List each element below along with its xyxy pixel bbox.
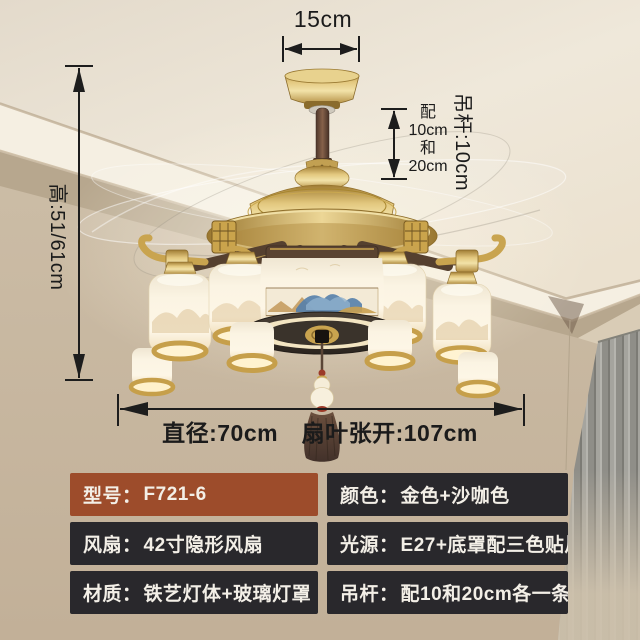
horizontal-arrow-icon [281,34,361,64]
lantern-shade [433,272,491,363]
spec-row-model: 型号： F721-6 [70,473,318,516]
spec-row-rod: 吊杆： 配10和20cm各一条 [327,571,568,614]
rod-length-label: 吊杆:10cm [450,76,479,208]
spec-row-color: 颜色： 金色+沙咖色 [327,473,568,516]
spec-value: F721-6 [144,484,207,506]
spec-label: 吊杆： [340,579,399,606]
spec-table: 型号： F721-6 颜色： 金色+沙咖色 风扇： 42寸隐形风扇 光源： E2… [70,473,568,614]
spec-row-material: 材质： 铁艺灯体+玻璃灯罩 [70,571,318,614]
downlight [367,320,413,369]
downlight [229,322,275,371]
spec-row-fan: 风扇： 42寸隐形风扇 [70,522,318,565]
spec-value: 金色+沙咖色 [401,481,510,508]
spec-label: 风扇： [83,530,142,557]
spec-row-light-source: 光源： E27+底罩配三色贴片 [327,522,568,565]
diameter-spread-label: 直径:70cm 扇叶张开:107cm [110,414,530,448]
spec-value: E27+底罩配三色贴片 [401,530,568,557]
hook-joint [456,250,478,272]
spec-label: 颜色： [340,481,399,508]
spec-value: 铁艺灯体+玻璃灯罩 [144,579,312,606]
fixture-height-label: 高:51/61cm [45,166,74,308]
fan-canopy [285,69,359,115]
canopy-width-label: 15cm [283,6,363,33]
spec-value: 42寸隐形风扇 [144,530,264,557]
spec-label: 材质： [83,579,142,606]
downlight [458,352,498,396]
rod-options-note: 配 10cm 和 20cm [400,104,456,176]
spec-value: 配10和20cm各一条 [401,579,568,606]
lantern-shade [149,262,211,359]
spec-label: 光源： [340,530,399,557]
spec-label: 型号： [83,481,142,508]
